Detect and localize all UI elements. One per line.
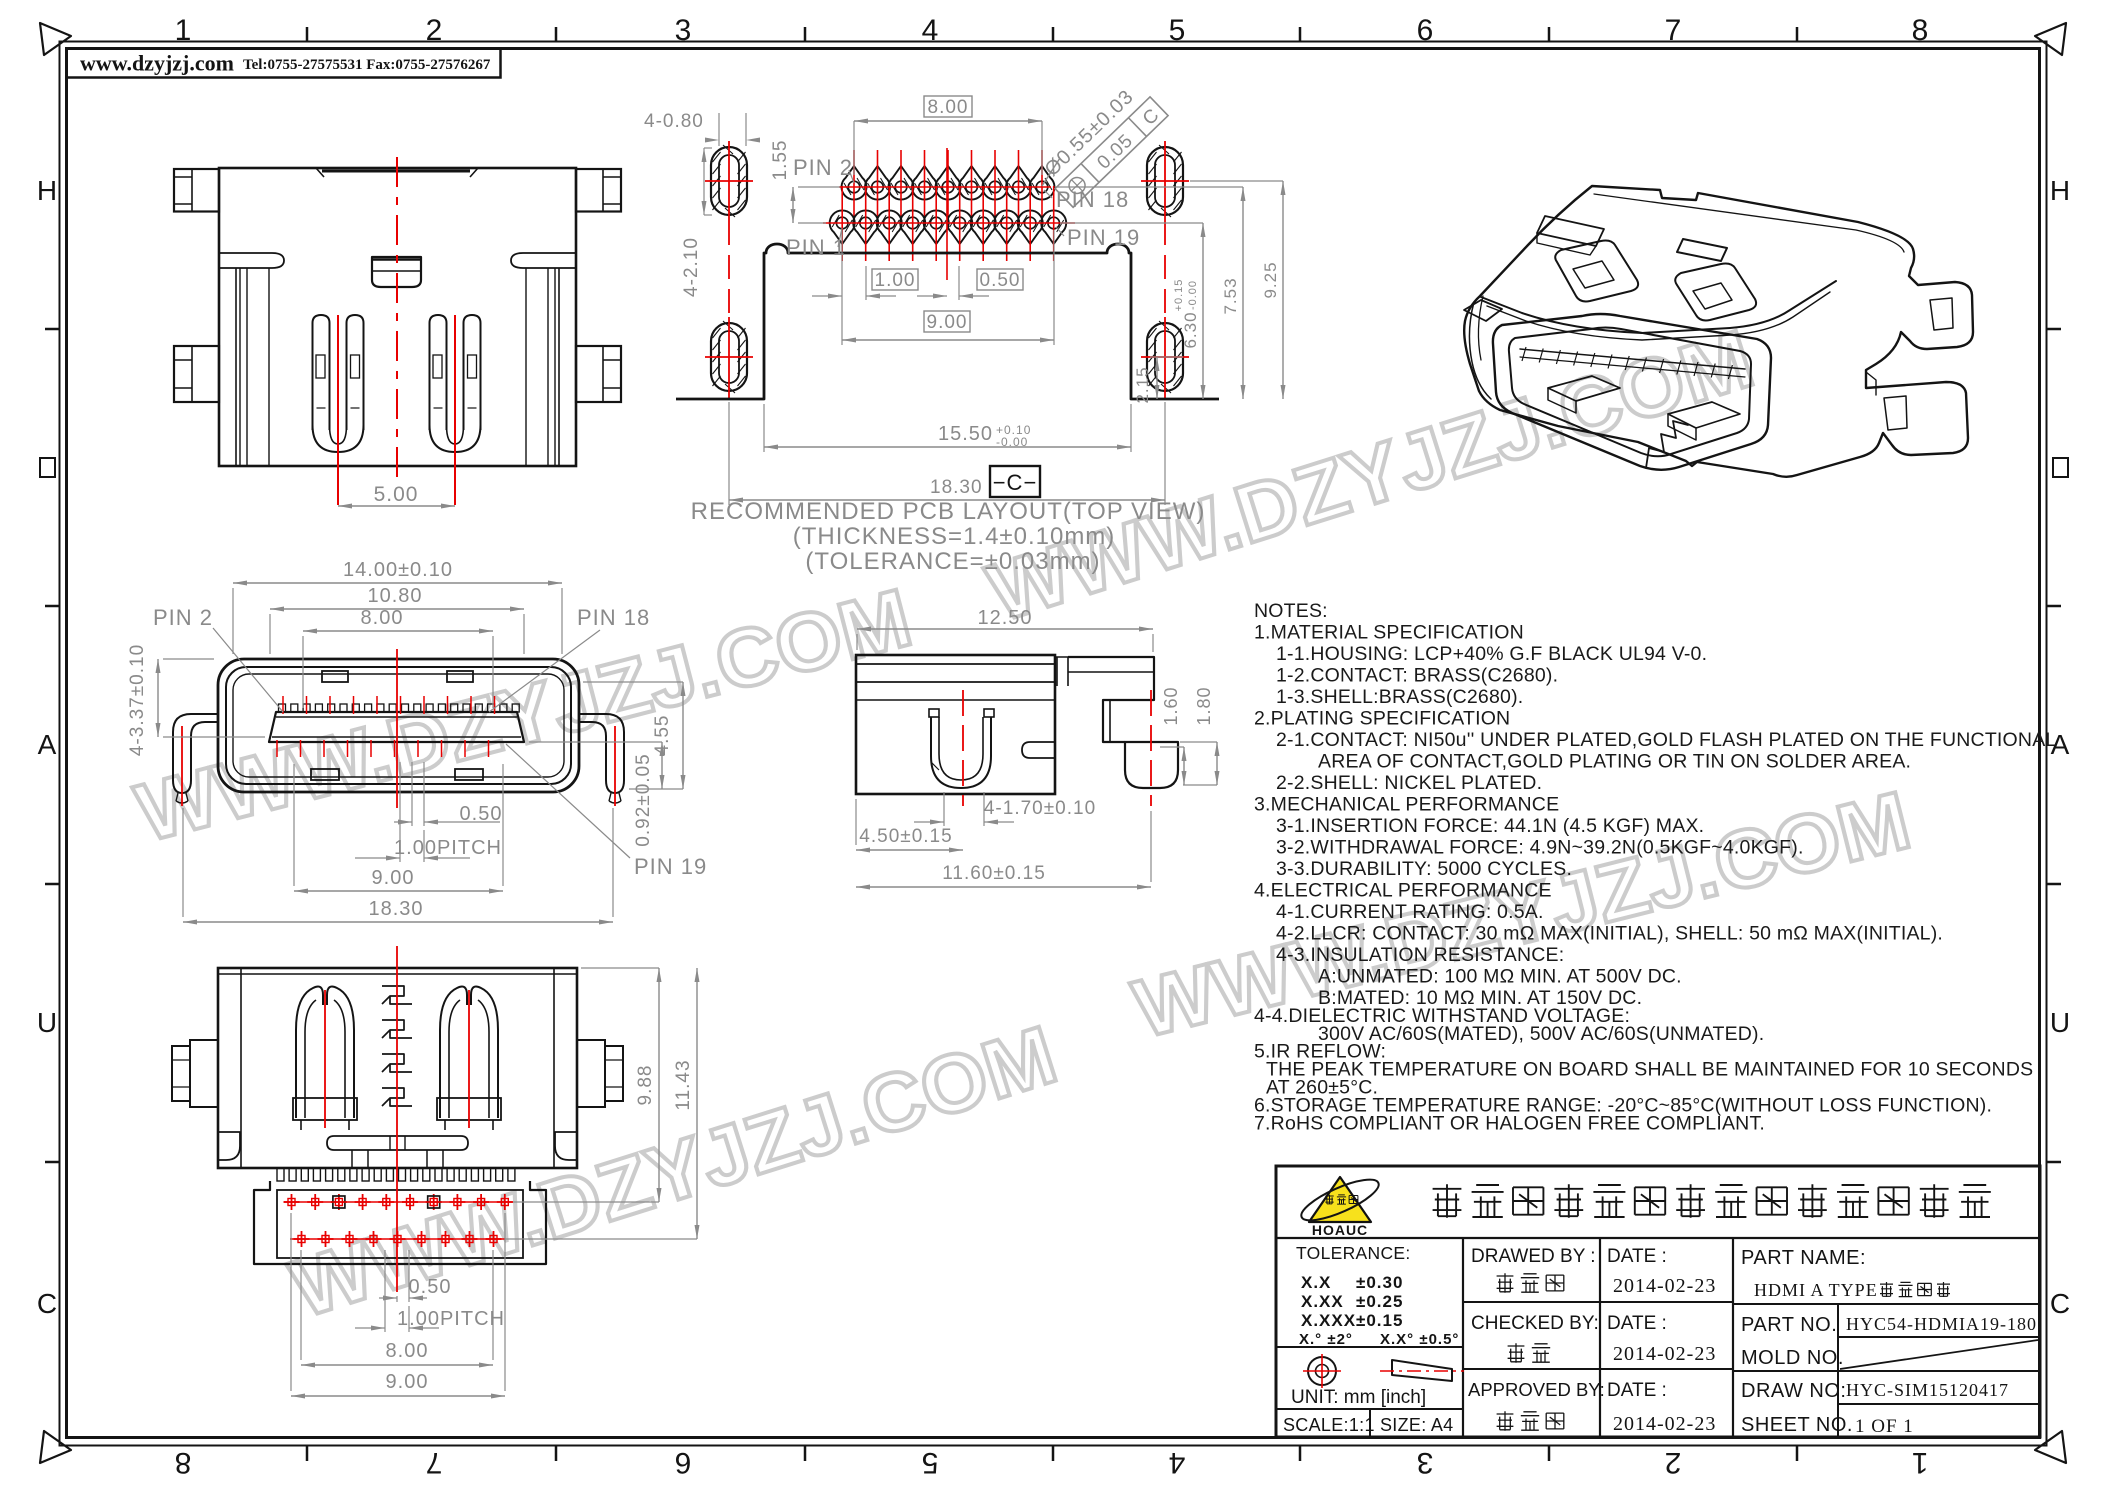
svg-text:X.X: X.X	[1301, 1273, 1331, 1292]
svg-text:1: 1	[1912, 1446, 1929, 1479]
svg-text:1.60: 1.60	[1161, 686, 1181, 725]
svg-text:4: 4	[1169, 1446, 1186, 1479]
svg-text:4-3.INSULATION RESISTANCE:: 4-3.INSULATION RESISTANCE:	[1276, 944, 1564, 966]
svg-text:TOLERANCE:: TOLERANCE:	[1296, 1243, 1411, 1263]
svg-text:4-2.LLCR: CONTACT: 30 mΩ M: 4-2.LLCR: CONTACT: 30 mΩ MAX(INITIAL), S…	[1276, 923, 1943, 945]
svg-text:HOAUC: HOAUC	[1312, 1222, 1368, 1238]
svg-text:3: 3	[675, 14, 692, 47]
svg-text:±0.30: ±0.30	[1356, 1273, 1403, 1292]
svg-text:15.50: 15.50	[938, 423, 993, 445]
svg-text:(THICKNESS=1.4±0.10mm): (THICKNESS=1.4±0.10mm)	[793, 523, 1116, 550]
svg-text:X.X° ±0.5°: X.X° ±0.5°	[1380, 1331, 1459, 1348]
svg-text:X.XX: X.XX	[1301, 1292, 1344, 1311]
svg-text:U: U	[2050, 1007, 2070, 1038]
svg-text:APPROVED BY:: APPROVED BY:	[1468, 1379, 1605, 1400]
svg-text:H: H	[37, 175, 57, 206]
svg-text:18.30: 18.30	[368, 898, 423, 920]
svg-text:11.60±0.15: 11.60±0.15	[942, 863, 1046, 884]
svg-text:3-1.INSERTION FORCE: 44.1N: 3-1.INSERTION FORCE: 44.1N (4.5 KGF) MAX…	[1276, 815, 1704, 837]
svg-text:1.00PITCH: 1.00PITCH	[394, 837, 502, 859]
svg-text:+0.15: +0.15	[1173, 279, 1185, 312]
svg-text:THE PEAK TEMPERATURE ON BO: THE PEAK TEMPERATURE ON BOARD SHALL BE M…	[1266, 1059, 2033, 1081]
svg-text:7: 7	[426, 1446, 443, 1479]
svg-text:H: H	[2050, 175, 2070, 206]
svg-text:0.50: 0.50	[980, 270, 1021, 291]
svg-text:2014-02-23: 2014-02-23	[1613, 1343, 1716, 1365]
svg-text:PART NO.: PART NO.	[1741, 1314, 1837, 1336]
svg-text:PIN 1: PIN 1	[786, 235, 846, 260]
svg-text:PIN 19: PIN 19	[1067, 225, 1140, 250]
svg-text:5.00: 5.00	[374, 483, 419, 506]
svg-text:3-3.DURABILITY: 5000 CYCLES.: 3-3.DURABILITY: 5000 CYCLES.	[1276, 858, 1572, 880]
svg-text:±0.25: ±0.25	[1356, 1292, 1403, 1311]
svg-text:-0.00: -0.00	[1187, 280, 1199, 310]
svg-text:7: 7	[1665, 14, 1682, 47]
svg-text:1.55: 1.55	[770, 140, 791, 181]
svg-text:4-1.CURRENT RATING: 0.5A.: 4-1.CURRENT RATING: 0.5A.	[1276, 901, 1544, 923]
svg-text:SIZE: A4: SIZE: A4	[1380, 1415, 1453, 1435]
svg-text:HYC-SIM15120417: HYC-SIM15120417	[1846, 1380, 2009, 1400]
svg-text:11.43: 11.43	[673, 1059, 694, 1110]
svg-text:9.88: 9.88	[635, 1065, 656, 1106]
svg-text:SHEET NO.: SHEET NO.	[1741, 1414, 1853, 1436]
svg-text:(TOLERANCE=±0.03mm): (TOLERANCE=±0.03mm)	[805, 548, 1100, 575]
svg-text:2.15: 2.15	[1133, 366, 1152, 403]
svg-text:6: 6	[675, 1446, 692, 1479]
svg-text:DATE :: DATE :	[1607, 1380, 1667, 1401]
svg-text:HYC54-HDMIA19-180: HYC54-HDMIA19-180	[1846, 1314, 2037, 1334]
svg-text:2014-02-23: 2014-02-23	[1613, 1275, 1716, 1297]
svg-text:1.MATERIAL SPECIFICATION: 1.MATERIAL SPECIFICATION	[1254, 622, 1524, 644]
svg-text:X.XXX: X.XXX	[1301, 1311, 1356, 1330]
svg-text:UNIT: mm [inch]: UNIT: mm [inch]	[1291, 1387, 1426, 1408]
svg-text:PIN 19: PIN 19	[634, 854, 707, 879]
svg-text:PIN 18: PIN 18	[1056, 187, 1129, 212]
svg-text:C: C	[2050, 1288, 2070, 1319]
svg-text:8.00: 8.00	[928, 97, 969, 118]
svg-text:5: 5	[922, 1446, 939, 1479]
svg-text:4-2.10: 4-2.10	[681, 237, 702, 297]
svg-text:NOTES:: NOTES:	[1254, 600, 1328, 622]
svg-text:8: 8	[175, 1446, 192, 1479]
svg-text:18.30: 18.30	[930, 477, 983, 498]
svg-text:4.50±0.15: 4.50±0.15	[859, 826, 952, 847]
svg-text:Tel:0755-27575531 Fax:0755-27: Tel:0755-27575531 Fax:0755-27576267	[243, 57, 491, 73]
svg-text:DATE :: DATE :	[1607, 1246, 1667, 1267]
svg-text:0.92±0.05: 0.92±0.05	[633, 753, 654, 846]
svg-text:0.50: 0.50	[409, 1276, 452, 1298]
svg-text:8: 8	[1912, 14, 1929, 47]
svg-text:X.° ±2°: X.° ±2°	[1299, 1331, 1353, 1348]
svg-text:8.00: 8.00	[386, 1340, 429, 1362]
svg-text:DATE :: DATE :	[1607, 1313, 1667, 1334]
svg-text:1: 1	[175, 14, 192, 47]
svg-text:9.25: 9.25	[1261, 261, 1280, 298]
svg-text:−C−: −C−	[993, 470, 1038, 495]
svg-text:RECOMMENDED PCB LAYOUT(TOP: RECOMMENDED PCB LAYOUT(TOP VIEW)	[691, 498, 1206, 525]
svg-text:C: C	[37, 1288, 57, 1319]
svg-text:4-0.80: 4-0.80	[644, 111, 704, 132]
svg-text:MOLD NO.: MOLD NO.	[1741, 1347, 1844, 1369]
svg-text:DRAW NO:: DRAW NO:	[1741, 1380, 1846, 1402]
svg-text:HDMI A TYPE: HDMI A TYPE	[1754, 1280, 1878, 1300]
svg-text:7.RoHS COMPLIANT OR HALOGEN: 7.RoHS COMPLIANT OR HALOGEN FREE COMPLIA…	[1254, 1112, 1765, 1134]
svg-text:2014-02-23: 2014-02-23	[1613, 1413, 1716, 1435]
svg-text:1-3.SHELL:BRASS(C2680).: 1-3.SHELL:BRASS(C2680).	[1276, 686, 1523, 708]
svg-text:9.00: 9.00	[927, 312, 968, 333]
svg-text:9.00: 9.00	[372, 867, 415, 889]
svg-text:4-3.37±0.10: 4-3.37±0.10	[127, 644, 148, 756]
svg-text:4-1.70±0.10: 4-1.70±0.10	[984, 798, 1096, 819]
svg-text:3-2.WITHDRAWAL FORCE: 4.9N~3: 3-2.WITHDRAWAL FORCE: 4.9N~39.2N(0.5KGF~…	[1276, 837, 1804, 859]
svg-text:3.MECHANICAL PERFORMANCE: 3.MECHANICAL PERFORMANCE	[1254, 794, 1559, 816]
svg-text:1.00: 1.00	[875, 270, 916, 291]
svg-text:3: 3	[1417, 1446, 1434, 1479]
svg-text:2: 2	[426, 14, 443, 47]
svg-text:14.00±0.10: 14.00±0.10	[343, 559, 453, 581]
svg-text:-0.00: -0.00	[996, 435, 1028, 449]
svg-text:AREA OF CONTACT,GOLD PLATIN: AREA OF CONTACT,GOLD PLATING OR TIN ON S…	[1318, 751, 1911, 773]
svg-text:PIN 2: PIN 2	[153, 605, 213, 630]
svg-text:PIN 18: PIN 18	[577, 605, 650, 630]
svg-text:7.53: 7.53	[1221, 277, 1240, 314]
svg-text:PIN 2: PIN 2	[793, 155, 853, 180]
svg-text:6.30: 6.30	[1181, 311, 1200, 348]
svg-text:1-1.HOUSING: LCP+40% G.F BL: 1-1.HOUSING: LCP+40% G.F BLACK UL94 V-0.	[1276, 643, 1707, 665]
svg-text:www.dzyjzj.com: www.dzyjzj.com	[80, 51, 234, 76]
svg-text:4: 4	[922, 14, 939, 47]
svg-text:9.00: 9.00	[386, 1371, 429, 1393]
svg-text:2-1.CONTACT: NI50u'' UNDER: 2-1.CONTACT: NI50u'' UNDER PLATED,GOLD F…	[1276, 729, 2056, 751]
svg-text:4.ELECTRICAL PERFORMANCE: 4.ELECTRICAL PERFORMANCE	[1254, 880, 1552, 902]
svg-text:DRAWED BY :: DRAWED BY :	[1471, 1246, 1596, 1267]
svg-text:8.00: 8.00	[361, 607, 404, 629]
svg-text:SCALE:1:1: SCALE:1:1	[1283, 1415, 1375, 1435]
svg-text:5: 5	[1169, 14, 1186, 47]
svg-text:1.00PITCH: 1.00PITCH	[397, 1308, 505, 1330]
svg-text:12.50: 12.50	[977, 607, 1032, 629]
svg-text:CHECKED BY:: CHECKED BY:	[1471, 1313, 1599, 1334]
svg-text:6: 6	[1417, 14, 1434, 47]
svg-text:1.80: 1.80	[1194, 686, 1214, 725]
svg-text:2.PLATING SPECIFICATION: 2.PLATING SPECIFICATION	[1254, 708, 1510, 730]
svg-text:A:UNMATED: 100 MΩ MIN. AT: A:UNMATED: 100 MΩ MIN. AT 500V DC.	[1318, 966, 1682, 988]
svg-text:±0.15: ±0.15	[1356, 1311, 1403, 1330]
svg-text:1 OF 1: 1 OF 1	[1855, 1416, 1914, 1437]
svg-text:U: U	[37, 1007, 57, 1038]
svg-text:2: 2	[1665, 1446, 1682, 1479]
svg-text:2-2.SHELL: NICKEL PLATED.: 2-2.SHELL: NICKEL PLATED.	[1276, 772, 1542, 794]
svg-text:A: A	[38, 729, 57, 760]
svg-text:10.80: 10.80	[367, 585, 422, 607]
svg-text:PART NAME:: PART NAME:	[1741, 1247, 1866, 1269]
svg-text:1-2.CONTACT: BRASS(C2680).: 1-2.CONTACT: BRASS(C2680).	[1276, 665, 1558, 687]
